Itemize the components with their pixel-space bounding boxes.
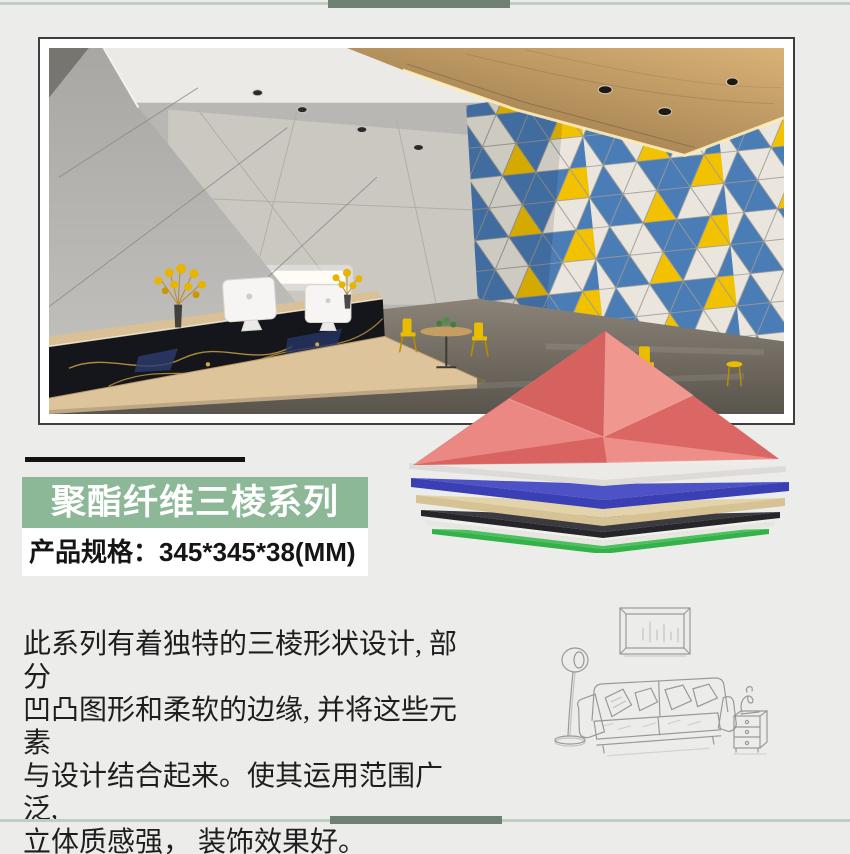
floor-lamp-sketch [555,648,588,746]
spotlight [658,108,672,116]
sofa-sketch-illustration [548,588,848,773]
page-background: 聚酯纤维三棱系列 产品规格：345*345*38(MM) 此系列有着独特的三棱形… [0,0,850,854]
top-accent-bar [328,0,510,8]
sofa-sketch [577,677,737,756]
side-table-sketch [734,687,767,754]
picture-frame-sketch [620,608,690,656]
product-spec-text: 产品规格：345*345*38(MM) [29,537,356,567]
product-spec-box: 产品规格：345*345*38(MM) [22,528,368,576]
series-title-banner: 聚酯纤维三棱系列 [22,477,368,528]
panel-pink-pyramid [413,331,779,465]
spotlight [598,86,612,94]
description-line: 凹凸图形和柔软的边缘, 并将这些元素 [23,694,473,760]
description-line: 此系列有着独特的三棱形状设计, 部分 [23,628,473,694]
table-lamp-sketch [741,696,753,712]
series-title-text: 聚酯纤维三棱系列 [51,483,339,522]
description-line: 立体质感强， 装饰效果好。 [23,826,473,854]
spotlight [726,78,738,86]
bottom-accent-bar [330,816,502,824]
series-title-rule [25,457,245,462]
product-panel-stack [403,323,797,553]
